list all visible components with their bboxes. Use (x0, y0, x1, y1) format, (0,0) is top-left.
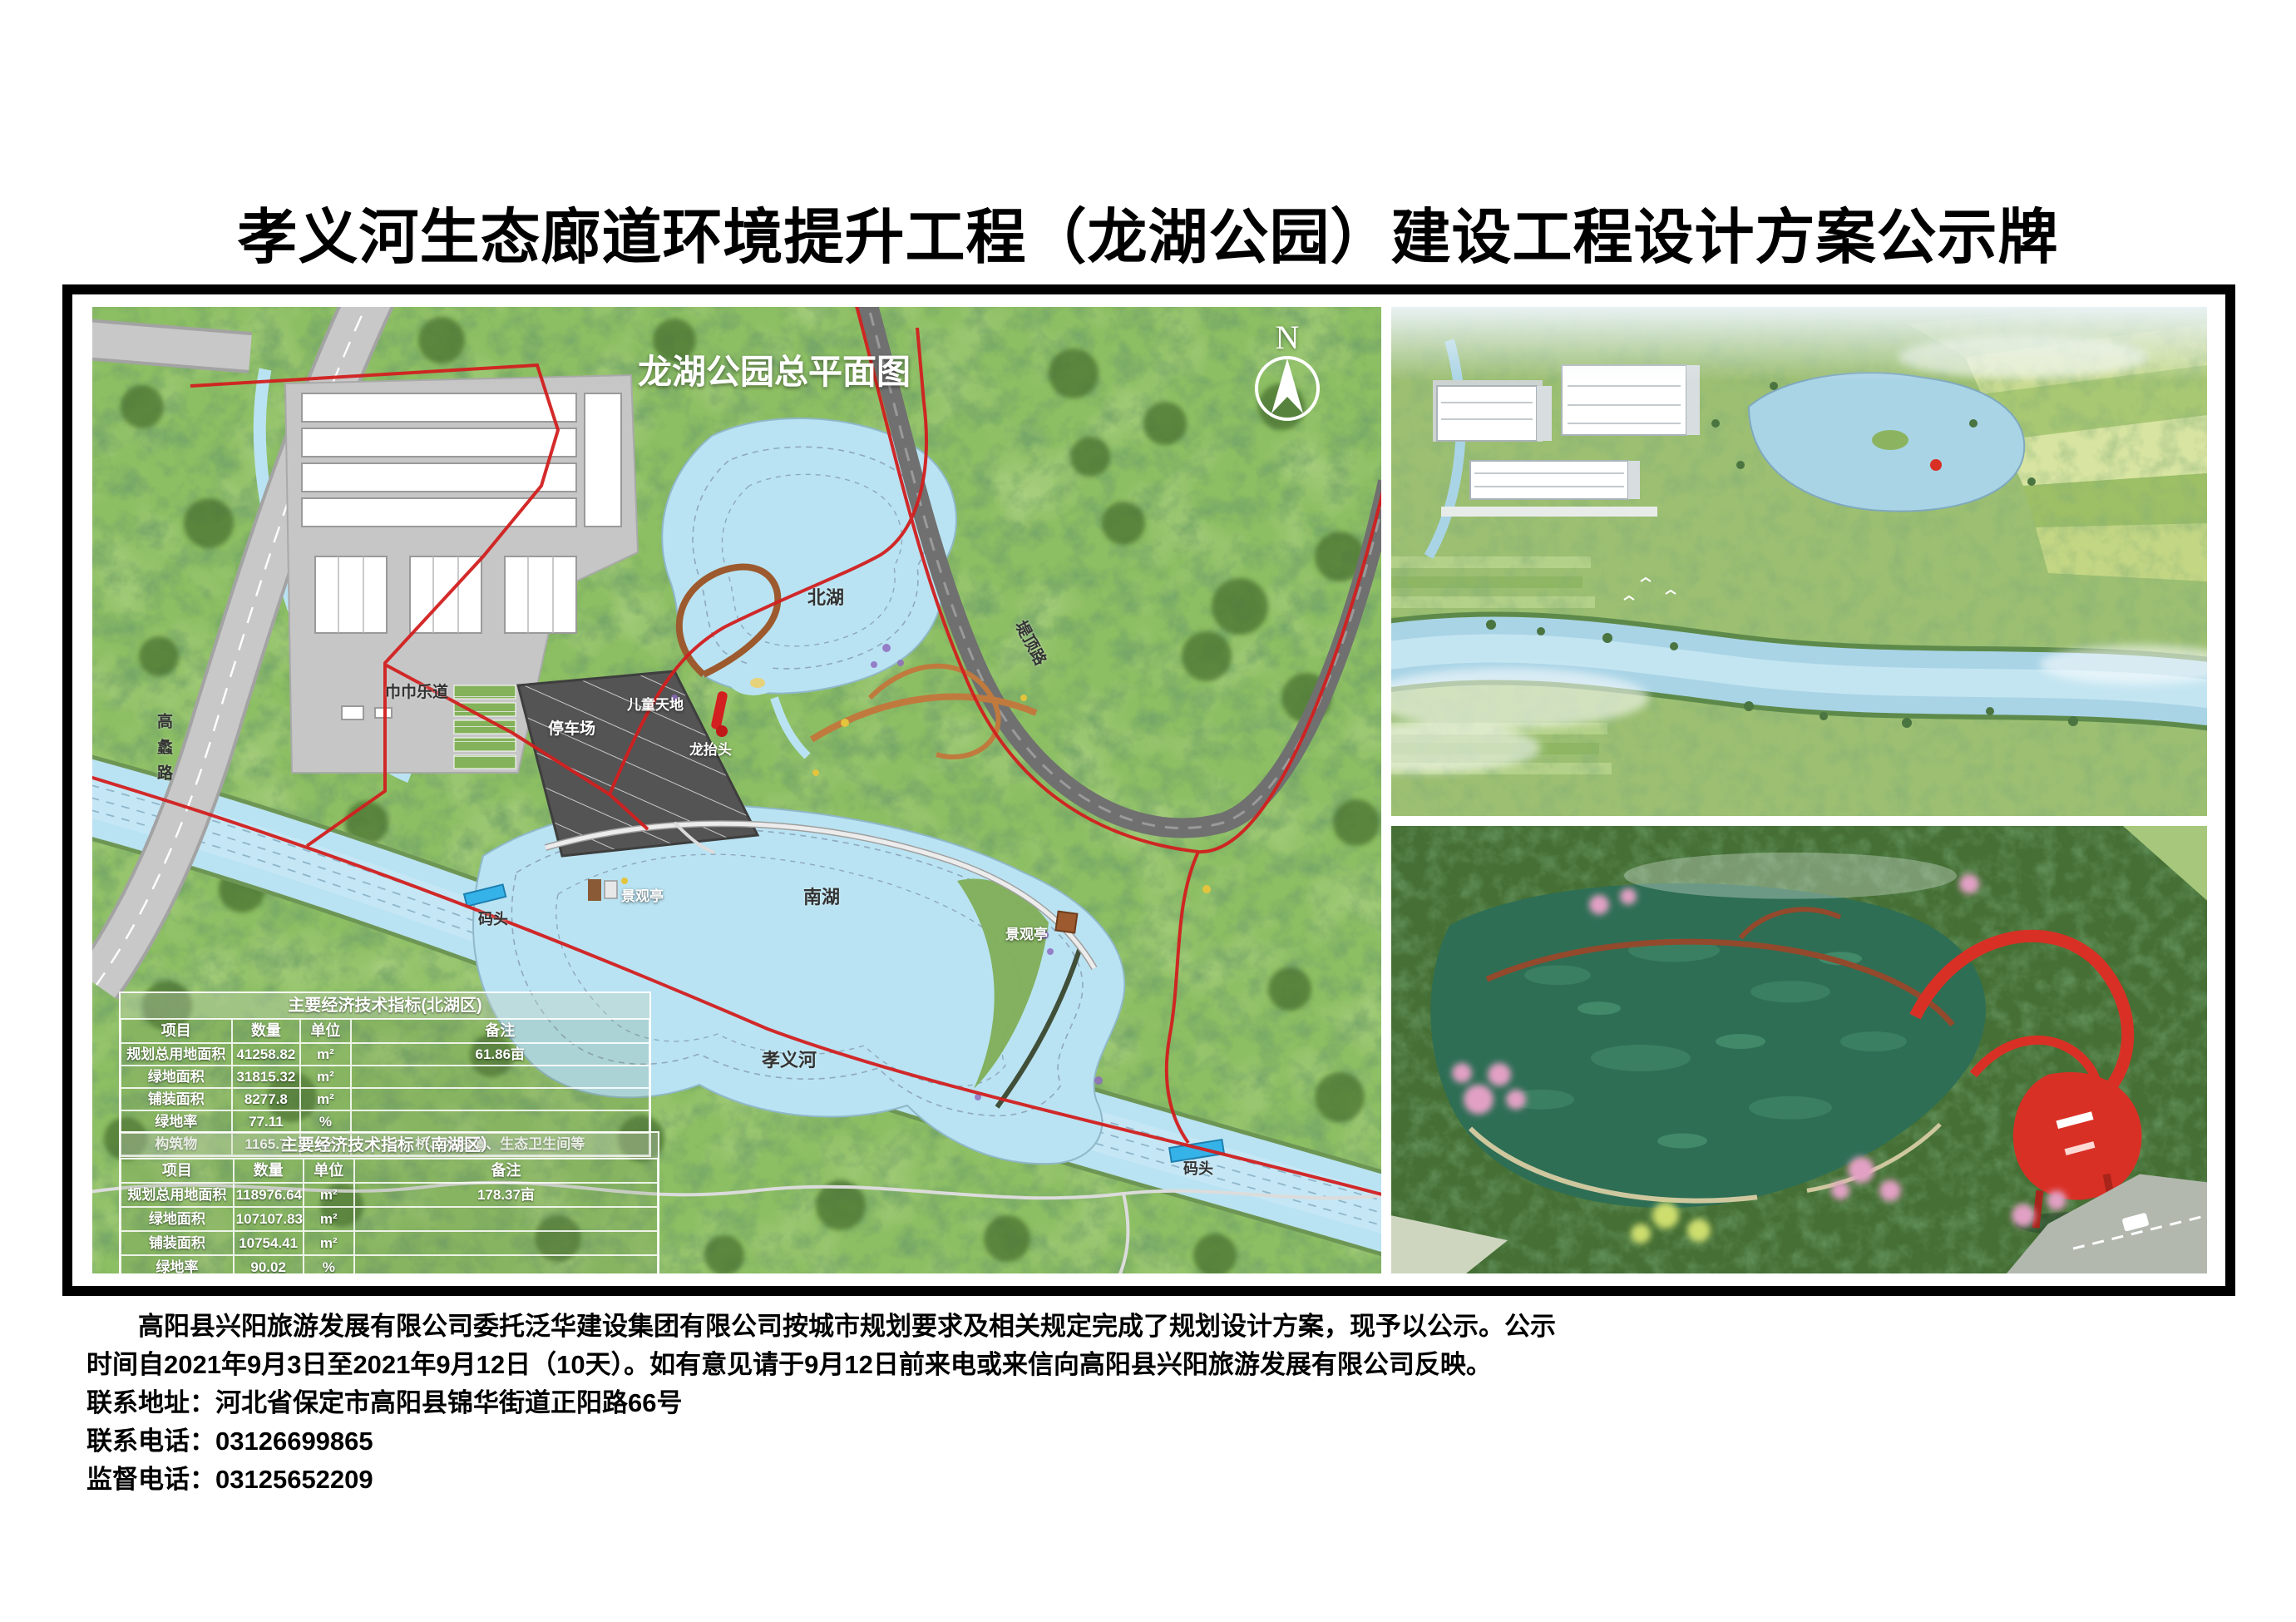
table-cell: m² (300, 1043, 350, 1066)
table-cell: 绿地率 (121, 1255, 234, 1273)
lake-detail-artwork (1391, 826, 2207, 1273)
table-cell (354, 1207, 658, 1231)
table-cell: m² (304, 1231, 354, 1255)
table-cell: 单位 (304, 1159, 354, 1183)
table-cell: 备注 (351, 1019, 649, 1043)
table-cell: 数量 (232, 1019, 301, 1043)
label-children-world: 儿童天地 (627, 693, 684, 714)
label-dock-west: 码头 (478, 907, 508, 929)
table-cell: 规划总用地面积 (121, 1043, 232, 1066)
label-dragon-head: 龙抬头 (689, 738, 732, 759)
table-cell (351, 1066, 649, 1088)
render-column (1391, 307, 2207, 1273)
table-row: 铺装面积8277.8m² (121, 1088, 649, 1110)
table-cell (354, 1231, 658, 1255)
table-cell: 10754.41 (234, 1231, 304, 1255)
table-row: 铺装面积10754.41m² (121, 1231, 658, 1255)
supervision-phone: 监督电话：03125652209 (86, 1461, 2249, 1499)
table-cell: 118976.64 (234, 1183, 304, 1207)
table-row: 规划总用地面积118976.64m²178.37亩 (121, 1183, 658, 1207)
table-cell: 41258.82 (232, 1043, 301, 1066)
label-jinjin-trail: 巾巾乐道 (385, 680, 448, 702)
table-cell: 备注 (354, 1159, 658, 1183)
green-parking-rows (454, 685, 516, 769)
label-south-lake: 南湖 (803, 883, 840, 909)
notice-text-block: 高阳县兴阳旅游发展有限公司委托泛华建设集团有限公司按城市规划要求及相关规定完成了… (86, 1308, 2249, 1499)
master-plan-map: 龙湖公园总平面图 N 北湖 南湖 孝义河 高蠡路 堤顶路 停车场 儿童天地 龙抬… (92, 307, 1381, 1273)
table-north-title: 主要经济技术指标(北湖区) (121, 993, 649, 1019)
map-title: 龙湖公园总平面图 (625, 344, 924, 393)
table-header-row: 项目数量单位备注 (121, 1159, 658, 1183)
table-cell (351, 1088, 649, 1110)
notice-line-2: 时间自2021年9月3日至2021年9月12日（10天）。如有意见请于9月12日… (86, 1346, 2249, 1384)
table-cell: m² (304, 1183, 354, 1207)
table-cell: 数量 (234, 1159, 304, 1183)
table-cell: 绿地面积 (121, 1066, 232, 1088)
table-cell: 61.86亩 (351, 1043, 649, 1066)
table-cell: 77.11 (232, 1110, 301, 1133)
table-cell: 铺装面积 (121, 1088, 232, 1110)
table-row: 规划总用地面积41258.82m²61.86亩 (121, 1043, 649, 1066)
pavilion-east-icon (1055, 912, 1077, 933)
table-cell: 绿地率 (121, 1110, 232, 1133)
label-dock-east: 码头 (1183, 1157, 1213, 1179)
table-cell (351, 1110, 649, 1133)
table-row: 绿地面积107107.83m² (121, 1207, 658, 1231)
table-row: 绿地率77.11% (121, 1110, 649, 1133)
page-title: 孝义河生态廊道环境提升工程（龙湖公园）建设工程设计方案公示牌 (0, 188, 2296, 275)
label-pavilion-east: 景观亭 (1005, 922, 1048, 943)
table-cell: m² (304, 1207, 354, 1231)
table-cell: 8277.8 (232, 1088, 301, 1110)
render-aerial-view (1391, 307, 2207, 816)
notice-board-page: 孝义河生态廊道环境提升工程（龙湖公园）建设工程设计方案公示牌 (0, 0, 2296, 1622)
table-row: 绿地率90.02% (121, 1255, 658, 1273)
table-row: 绿地面积31815.32m² (121, 1066, 649, 1088)
table-cell: % (300, 1110, 350, 1133)
table-cell: 31815.32 (232, 1066, 301, 1088)
north-letter: N (1250, 320, 1325, 355)
red-structure-dot (1930, 459, 1942, 471)
label-parking-lot: 停车场 (548, 716, 595, 739)
notice-line-1: 高阳县兴阳旅游发展有限公司委托泛华建设集团有限公司按城市规划要求及相关规定完成了… (86, 1308, 2249, 1346)
label-north-lake: 北湖 (807, 583, 844, 610)
contact-address: 联系地址：河北省保定市高阳县锦华街道正阳路66号 (86, 1384, 2249, 1422)
table-cell: % (304, 1255, 354, 1273)
table-cell: 107107.83 (234, 1207, 304, 1231)
table-cell: 规划总用地面积 (121, 1183, 234, 1207)
table-cell: 绿地面积 (121, 1207, 234, 1231)
table-cell: m² (300, 1066, 350, 1088)
label-xiaoyi-river: 孝义河 (762, 1046, 817, 1072)
tech-indicators-table-south: 主要经济技术指标（南湖区） 项目数量单位备注规划总用地面积118976.64m²… (119, 1131, 659, 1273)
board-frame: 龙湖公园总平面图 N 北湖 南湖 孝义河 高蠡路 堤顶路 停车场 儿童天地 龙抬… (62, 284, 2235, 1296)
table-cell: 项目 (121, 1159, 234, 1183)
table-cell: 项目 (121, 1019, 232, 1043)
table-south-title: 主要经济技术指标（南湖区） (121, 1133, 658, 1159)
north-indicator: N (1250, 320, 1325, 355)
label-gaoli-road: 高蠡路 (152, 713, 175, 790)
table-cell: 178.37亩 (354, 1183, 658, 1207)
label-pavilion-west: 景观亭 (621, 884, 664, 905)
table-cell: 单位 (300, 1019, 350, 1043)
render-lake-detail (1391, 826, 2207, 1273)
table-cell (354, 1255, 658, 1273)
table-cell: 90.02 (234, 1255, 304, 1273)
aerial-artwork (1391, 307, 2207, 816)
contact-phone: 联系电话：03126699865 (86, 1422, 2249, 1461)
table-header-row: 项目数量单位备注 (121, 1019, 649, 1043)
table-cell: 铺装面积 (121, 1231, 234, 1255)
table-cell: m² (300, 1088, 350, 1110)
